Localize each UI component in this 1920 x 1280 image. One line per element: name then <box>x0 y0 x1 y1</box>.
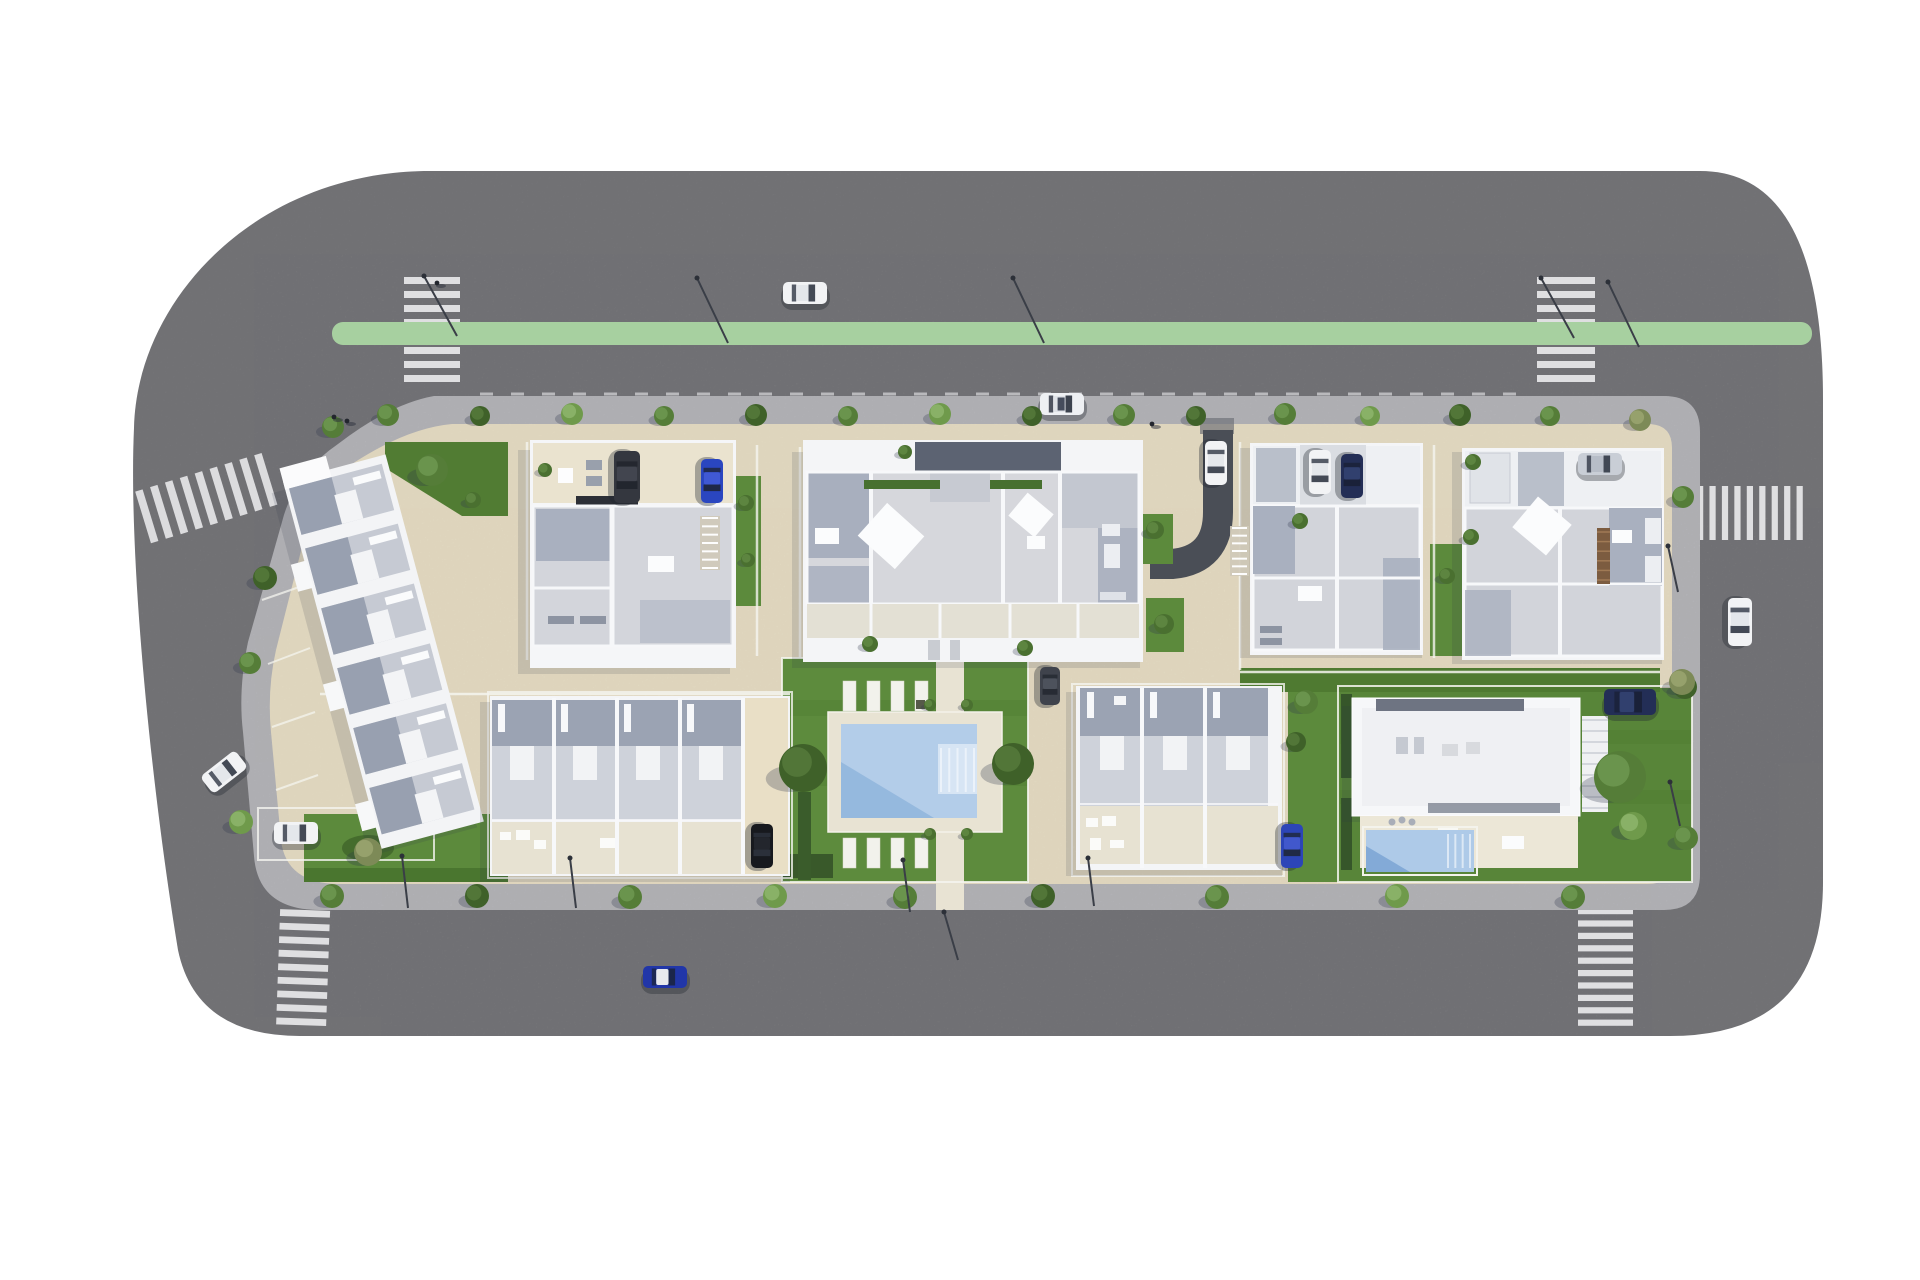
rowhouses-south-mid-part <box>1226 736 1250 770</box>
apartment-building-center-part <box>1104 544 1120 568</box>
terrace-furniture <box>1086 818 1098 827</box>
hedge <box>798 792 811 880</box>
rowhouses-south-mid <box>1066 686 1282 876</box>
villa-roof <box>1362 708 1570 806</box>
rowhouses-south-west-part <box>573 746 597 780</box>
bike-lane <box>332 322 1812 345</box>
terrace-furniture <box>1110 840 1124 848</box>
car-white <box>1199 439 1227 488</box>
apartment-building-e-part <box>1465 590 1511 656</box>
terrace-furniture <box>1090 838 1101 850</box>
car-darkgray <box>1034 665 1060 708</box>
sun-lounger <box>580 616 606 624</box>
car-white <box>1303 448 1331 497</box>
lawn-strip-b <box>1143 514 1173 564</box>
crosswalk-bottom-left <box>276 909 330 1026</box>
rowhouses-south-west-part <box>561 704 568 732</box>
sun-lounger <box>1100 592 1126 600</box>
upper-roof-volume <box>915 442 1061 472</box>
apartment-building-center-part <box>807 472 871 558</box>
roof-hedge <box>864 480 940 489</box>
roof-hedge <box>990 480 1042 489</box>
apartment-building-ne-part <box>1253 506 1295 574</box>
sun-lounger <box>843 838 856 868</box>
rowhouses-south-mid-part <box>1150 692 1157 718</box>
apartment-building-a-part <box>640 600 730 643</box>
terrace-band <box>1080 806 1278 864</box>
sun-lounger <box>867 681 880 711</box>
rowhouses-south-west <box>480 696 790 882</box>
rowhouses-south-west-part <box>624 704 631 732</box>
terrace-band <box>807 604 1139 638</box>
terrace-table <box>1502 836 1524 849</box>
terrace-chair <box>1409 819 1416 826</box>
terrace-furniture <box>500 832 511 840</box>
rowhouses-south-west-part <box>636 746 660 780</box>
terrace-furniture <box>600 838 616 848</box>
car-blue-whiteroof <box>641 966 690 994</box>
aerial-site-plan <box>0 0 1920 1280</box>
wood-deck <box>1597 528 1610 584</box>
terrace-furniture <box>516 830 530 840</box>
rowhouses-south-west-part <box>510 746 534 780</box>
roof-table <box>558 468 573 483</box>
car-dark-van <box>608 449 640 506</box>
car-black <box>745 822 773 871</box>
apartment-building-center-part <box>1060 472 1139 528</box>
sun-lounger <box>548 616 574 624</box>
roof-box <box>1442 744 1458 756</box>
site-plan-svg <box>0 0 1920 1280</box>
stairs <box>702 518 718 568</box>
terrace-chair <box>1389 819 1396 826</box>
car-blue <box>1275 822 1303 871</box>
balcony <box>1645 556 1661 582</box>
car-blue <box>695 457 723 506</box>
sun-lounger <box>891 838 904 868</box>
terrace-chair <box>1399 817 1406 824</box>
car-white <box>1722 596 1752 649</box>
canopy-strip <box>1428 803 1560 813</box>
car-white-sunroof <box>1038 393 1087 421</box>
rowhouses-south-mid-part <box>1087 692 1094 718</box>
entry-path <box>950 640 960 660</box>
villa <box>1342 698 1608 875</box>
stairs <box>1232 528 1247 574</box>
pool-path-south <box>936 830 964 910</box>
sun-lounger <box>1260 638 1282 645</box>
terrace-furniture <box>534 840 546 849</box>
apartment-building-e <box>1452 448 1664 664</box>
car-navy <box>1335 452 1363 501</box>
roof-dining-set <box>1612 530 1632 543</box>
rowhouses-south-west-part <box>498 704 505 732</box>
roof-dining-set <box>648 556 674 572</box>
ac-unit <box>586 476 602 486</box>
roof-chair <box>1114 696 1126 705</box>
roof-table <box>1027 536 1045 549</box>
roof-dining-set <box>815 528 839 544</box>
balcony <box>1645 518 1661 544</box>
sun-lounger <box>867 838 880 868</box>
skylight <box>1396 737 1408 754</box>
crosswalk-right <box>1697 486 1803 540</box>
apartment-building-center-part <box>1102 524 1120 536</box>
apartment-building-center-part <box>807 566 871 604</box>
sun-lounger <box>843 681 856 711</box>
apartment-building-ne-part <box>1256 448 1296 502</box>
skylight <box>1414 737 1424 754</box>
rowhouses-south-west-part <box>687 704 694 732</box>
green-bike-lane <box>332 322 1812 345</box>
apartment-building-center <box>792 440 1143 668</box>
car-white <box>781 282 830 310</box>
rowhouses-south-west-part <box>699 746 723 780</box>
apartment-building-e-part <box>1518 452 1564 506</box>
roof-dining-set <box>1298 586 1322 601</box>
lawn-edge-shade <box>304 868 508 882</box>
rowhouses-south-mid-part <box>1163 736 1187 770</box>
car-white <box>272 822 321 850</box>
sun-lounger <box>1260 626 1282 633</box>
terrace-furniture <box>1102 816 1116 826</box>
entry-path <box>928 640 940 660</box>
sun-lounger <box>915 838 928 868</box>
roof-box <box>1466 742 1480 754</box>
ac-unit <box>586 460 602 470</box>
sun-lounger <box>891 681 904 711</box>
apartment-building-a-part <box>536 509 610 561</box>
rowhouses-south-mid-part <box>1213 692 1220 718</box>
car-silver <box>1576 453 1625 481</box>
rowhouses-south-mid-part <box>1100 736 1124 770</box>
canopy-strip <box>1376 699 1524 711</box>
car-navy <box>1602 689 1659 721</box>
apartment-building-ne-part <box>1383 558 1420 650</box>
